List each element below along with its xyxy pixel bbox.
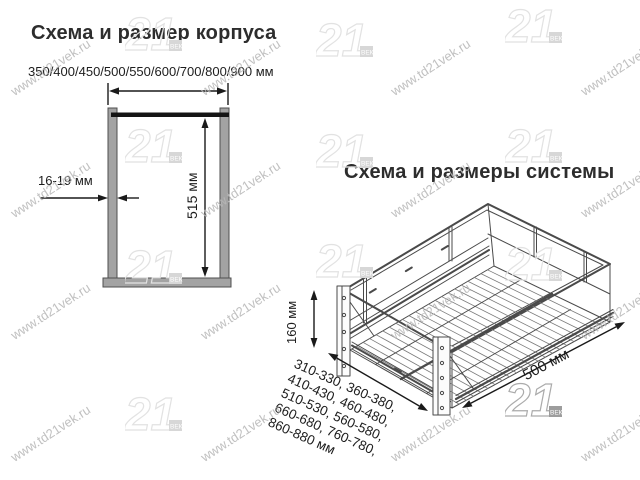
cabinet-right-wall bbox=[220, 108, 229, 278]
system-height-arrow bbox=[311, 290, 318, 348]
cabinet-height-label: 515 мм bbox=[184, 168, 200, 224]
logo-21-icon: 21ВЕК bbox=[125, 390, 183, 442]
svg-text:ВЕК: ВЕК bbox=[550, 36, 563, 43]
cabinet-thickness-label: 16-19 мм bbox=[38, 173, 93, 188]
svg-text:21: 21 bbox=[505, 2, 556, 52]
watermark-text: www.td21vek.ru bbox=[8, 402, 93, 465]
right-back-rail bbox=[488, 227, 610, 294]
brand-logo-watermark: 21ВЕК bbox=[505, 2, 563, 59]
logo-21-icon: 21ВЕК bbox=[505, 2, 563, 54]
watermark-text: www.td21vek.ru bbox=[198, 402, 283, 465]
watermark-text: www.td21vek.ru bbox=[388, 36, 473, 99]
basket-drawing bbox=[337, 204, 613, 415]
svg-text:ВЕК: ВЕК bbox=[361, 50, 374, 57]
brand-logo-watermark: 21ВЕК bbox=[125, 390, 183, 447]
brand-logo-watermark: 21ВЕК bbox=[316, 16, 374, 73]
cabinet-title: Схема и размер корпуса bbox=[31, 22, 276, 45]
watermark-text: www.td21vek.ru bbox=[578, 36, 640, 99]
system-height-label: 160 мм bbox=[284, 295, 299, 349]
svg-text:21: 21 bbox=[125, 390, 176, 440]
cabinet-width-dimension bbox=[108, 83, 228, 105]
schematic-page: Схема и размер корпуса 350/400/450/500/5… bbox=[0, 0, 640, 480]
cabinet-thickness-dimension bbox=[40, 195, 139, 202]
basket-rim-inner bbox=[351, 210, 603, 346]
system-title: Схема и размеры системы bbox=[344, 161, 614, 184]
svg-text:21: 21 bbox=[316, 16, 367, 66]
cabinet-bottom-panel bbox=[103, 278, 231, 287]
cabinet-height-dimension bbox=[202, 118, 209, 277]
logo-21-icon: 21ВЕК bbox=[316, 16, 374, 68]
cabinet-top-rail bbox=[111, 113, 229, 118]
svg-text:ВЕК: ВЕК bbox=[170, 424, 183, 431]
cabinet-left-wall bbox=[108, 108, 117, 278]
